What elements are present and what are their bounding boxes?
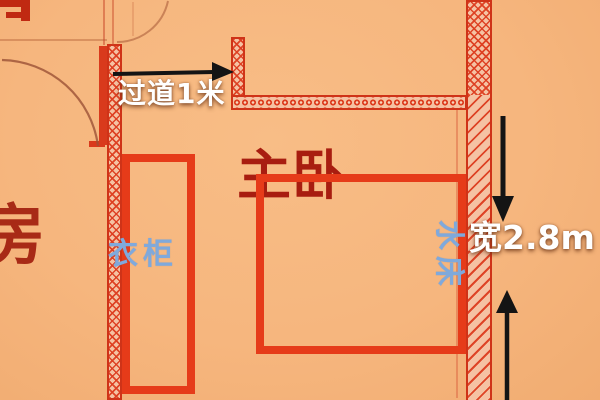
floorplan-image: 房 主卧 过道1米 宽2.8m 衣柜 水床 [0, 0, 600, 400]
arrows-layer [0, 0, 600, 400]
arrow-up-icon [496, 290, 518, 400]
arrow-right-icon [113, 62, 234, 81]
arrow-down-icon [492, 116, 514, 222]
